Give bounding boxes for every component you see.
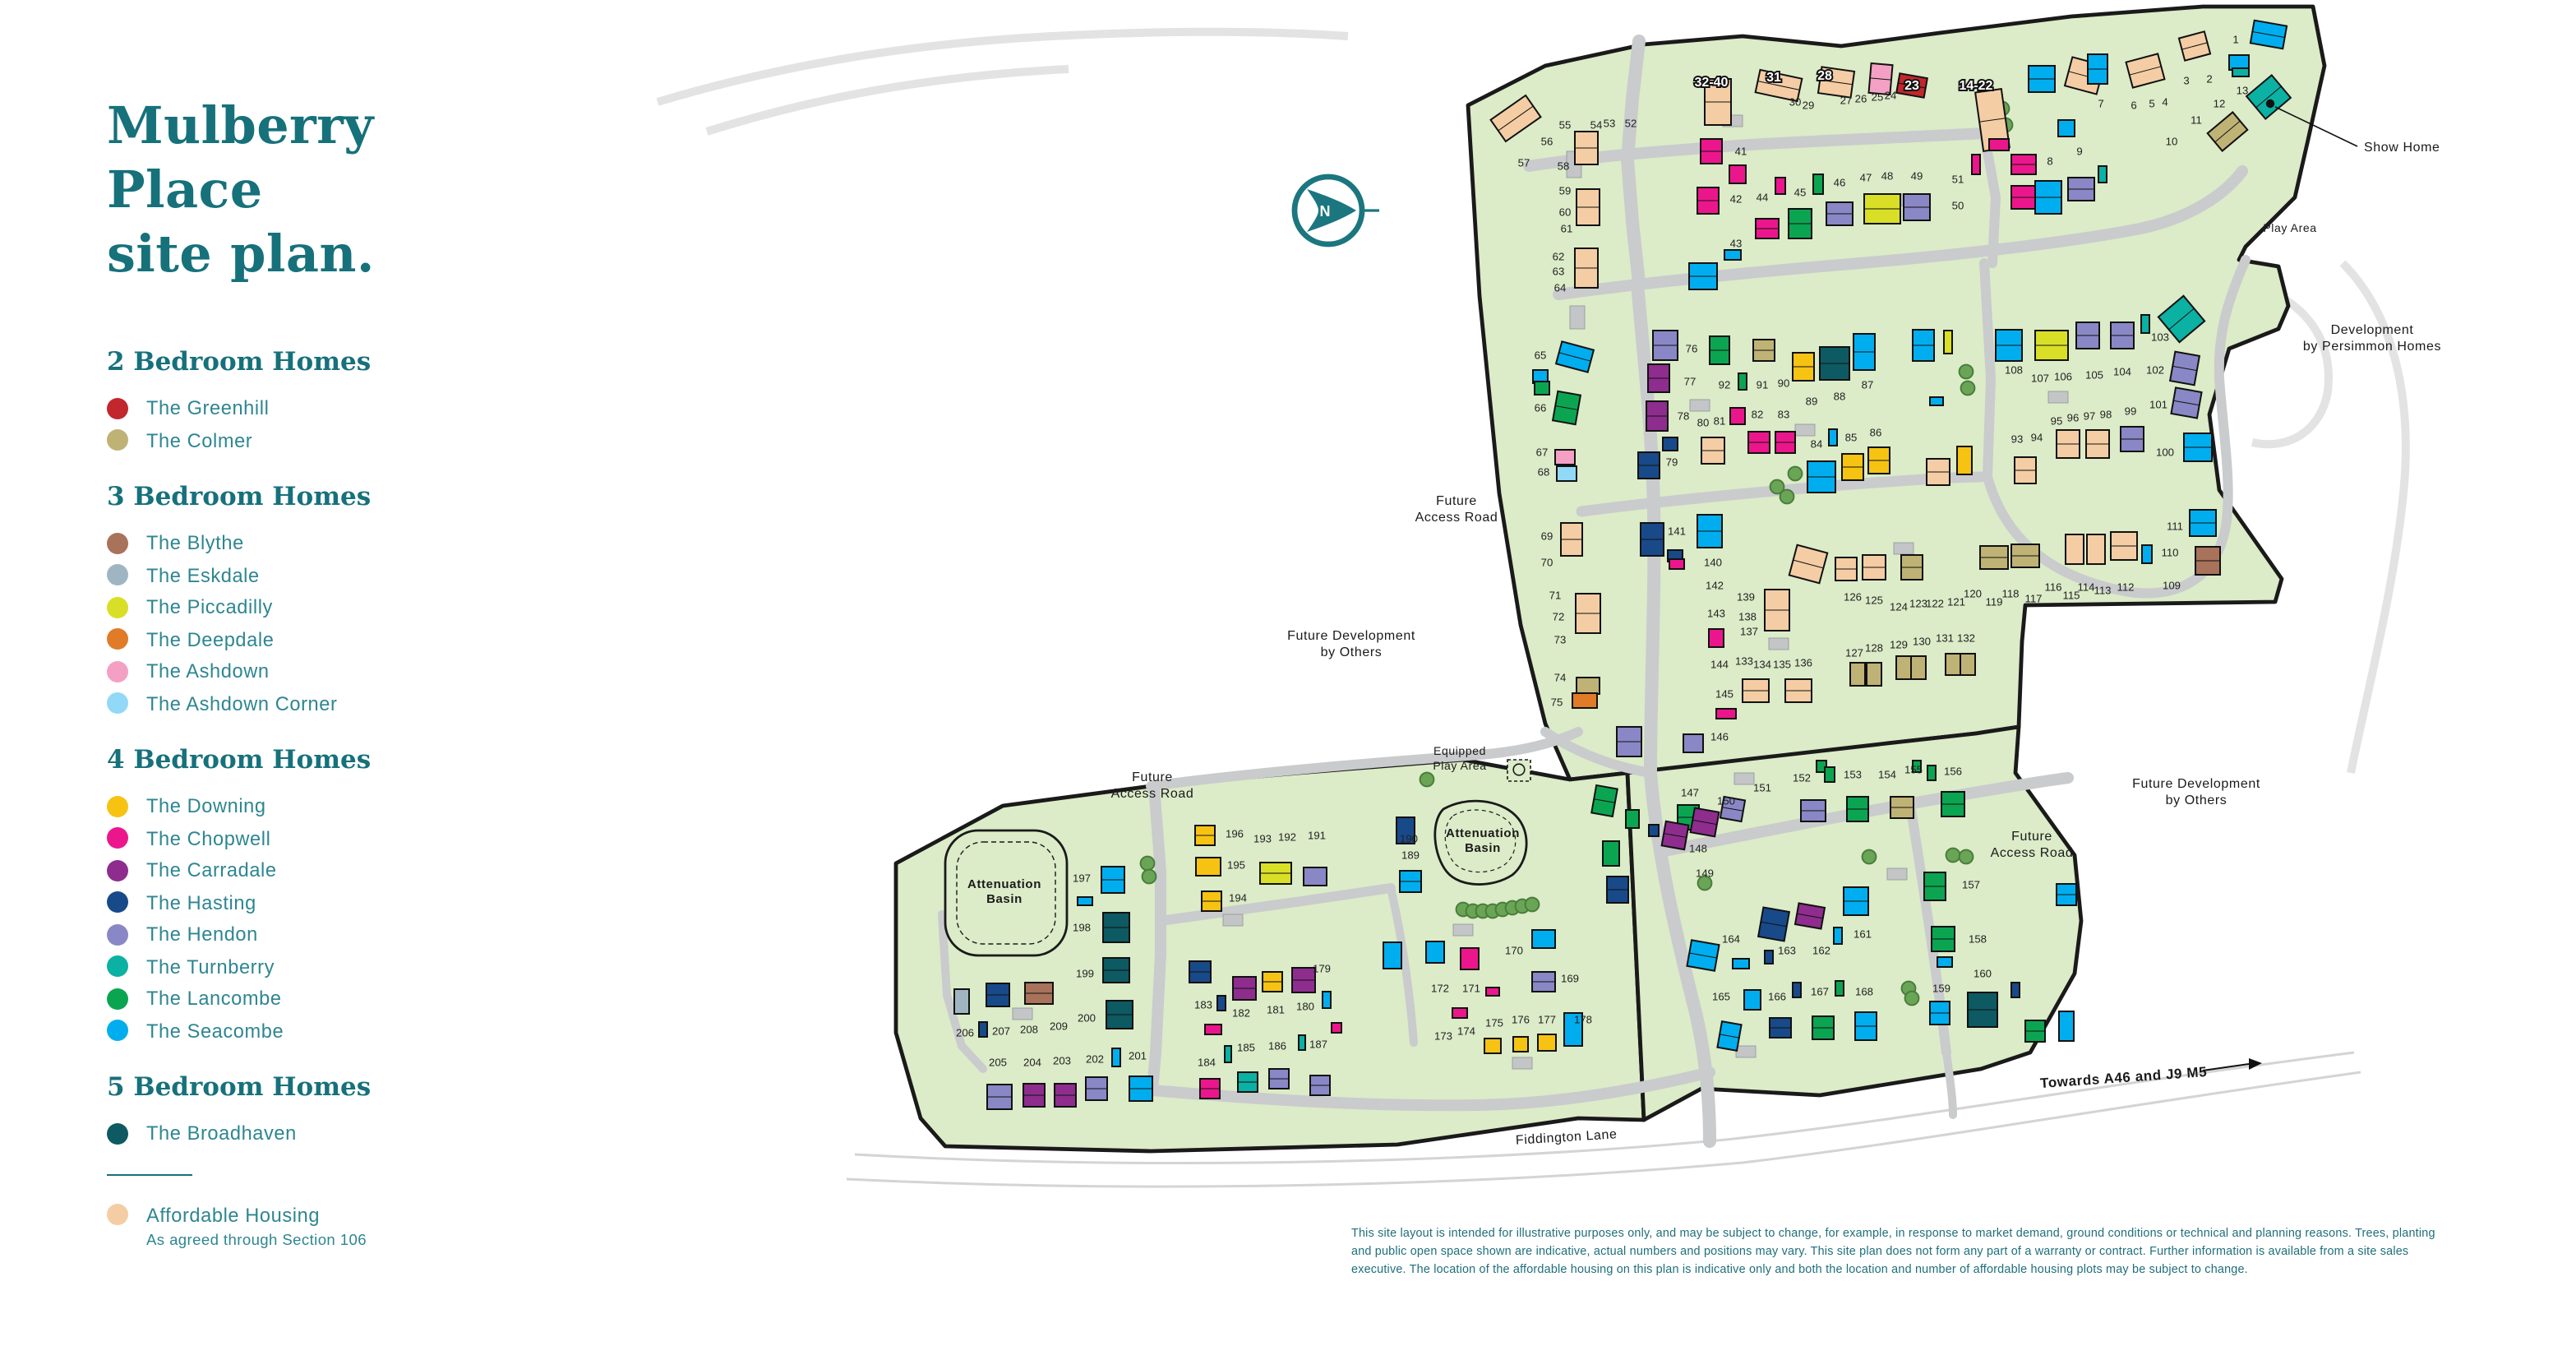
plot-number: 50 [1952, 199, 1964, 211]
house-marker-la [1932, 927, 1955, 951]
plot-number: 55 [1559, 118, 1572, 131]
house-marker-ch [1486, 988, 1499, 996]
legend-item-label: The Carradale [146, 858, 277, 881]
house-marker-do [1195, 826, 1215, 845]
plot-number: 203 [1053, 1054, 1071, 1066]
plot-number: 65 [1535, 349, 1547, 361]
map-label: Access Road [1415, 511, 1498, 525]
plot-number: 76 [1686, 342, 1698, 354]
plot-number: 133 [1735, 655, 1753, 667]
plot-number: 68 [1538, 465, 1550, 478]
plot-number: 62 [1553, 250, 1565, 262]
plot-number: 46 [1834, 176, 1846, 188]
plot-number: 72 [1553, 610, 1565, 622]
legend-heading: 4 Bedroom Homes [107, 744, 715, 775]
house-marker-ch [2011, 186, 2036, 209]
plot-number: 90 [1778, 377, 1790, 389]
house-marker-af [1577, 189, 1600, 225]
house-marker-se [1383, 942, 1401, 969]
plot-number: 180 [1296, 1000, 1314, 1012]
house-marker-se [1937, 957, 1952, 967]
plot-number: 11 [2191, 113, 2202, 126]
legend-color-dot [107, 596, 128, 618]
plot-number: 63 [1553, 265, 1565, 277]
house-marker-se [1913, 330, 1934, 361]
house-marker-ha [2011, 983, 2020, 997]
legend-item-the-colmer: The Colmer [107, 424, 715, 456]
plot-number: 154 [1878, 768, 1896, 780]
house-marker-ca [1646, 401, 1668, 431]
plot-number: 12 [2214, 97, 2226, 109]
plot-range-label: 28 [1817, 69, 1832, 83]
plot-number: 190 [1400, 832, 1418, 844]
house-marker-se [1101, 867, 1124, 893]
map-label: Access Road [1991, 846, 2074, 860]
legend-item-the-ashdown-corner: The Ashdown Corner [107, 687, 715, 719]
house-marker-se [1323, 992, 1331, 1008]
tree-icon [1143, 870, 1156, 884]
plot-number: 207 [992, 1025, 1010, 1037]
legend-heading: 5 Bedroom Homes [107, 1071, 715, 1103]
house-marker-se [1930, 397, 1943, 405]
plot-number: 185 [1237, 1041, 1255, 1053]
house-marker-bl [2195, 547, 2220, 575]
house-marker-do [1202, 891, 1221, 911]
house-marker-se [1744, 990, 1761, 1010]
house-marker-se [1829, 429, 1837, 446]
house-marker-ha [986, 983, 1009, 1006]
house-marker-ha [1765, 951, 1773, 964]
house-marker-he [1304, 867, 1327, 886]
house-marker-ha [1638, 452, 1660, 479]
house-marker-tu [2232, 68, 2249, 76]
plot-number: 172 [1431, 982, 1449, 994]
plot-number: 27 [1840, 94, 1853, 106]
house-marker-se [2058, 120, 2075, 136]
map-label: Access Road [1111, 787, 1194, 801]
legend-item-label: The Hendon [146, 923, 258, 946]
plot-number: 119 [1985, 595, 2002, 608]
plot-number: 192 [1278, 830, 1296, 843]
plot-number: 131 [1936, 631, 1954, 644]
house-marker-ch [1709, 629, 1724, 647]
plot-number: 117 [2024, 592, 2042, 604]
plot-number: 170 [1505, 944, 1523, 956]
house-marker-he [2111, 322, 2134, 349]
house-marker-af [1789, 545, 1828, 584]
map-label: Future [2011, 830, 2052, 844]
plot-number: 108 [2005, 363, 2023, 376]
house-marker-ch [1775, 432, 1795, 453]
affordable-housing-note: As agreed through Section 106 [146, 1233, 715, 1249]
plot-range-label: 32-40 [1695, 76, 1729, 90]
house-marker-ch [1669, 559, 1684, 569]
legend-section: 5 Bedroom HomesThe Broadhaven [107, 1071, 715, 1150]
plot-number: 73 [1554, 633, 1567, 645]
house-marker-af [1575, 132, 1598, 164]
house-marker-he [1310, 1076, 1330, 1095]
plot-number: 109 [2163, 579, 2181, 591]
plot-number: 87 [1862, 378, 1874, 391]
house-marker-co [1577, 678, 1600, 694]
plot-number: 77 [1684, 375, 1697, 387]
house-marker-la [1927, 766, 1936, 780]
house-marker-ac [1557, 466, 1577, 481]
map-label: Basin [986, 892, 1023, 906]
house-marker-ch [1775, 178, 1785, 194]
map-label: Future [1132, 770, 1173, 784]
house-marker-se [1996, 330, 2022, 361]
legend-color-dot [107, 660, 128, 682]
plot-number: 10 [2166, 135, 2178, 147]
legend-item-the-broadhaven: The Broadhaven [107, 1117, 715, 1150]
house-marker-se [2057, 884, 2076, 905]
plot-range-label: 23 [1904, 79, 1919, 93]
house-marker-co [1753, 340, 1775, 361]
plot-number: 51 [1952, 173, 1964, 185]
house-marker-ca [1023, 1084, 1045, 1107]
house-marker-af [1575, 248, 1598, 288]
map-label: Equipped [1433, 744, 1486, 757]
house-marker-la [1825, 767, 1835, 782]
map-label: Play Area [1433, 759, 1486, 772]
disclaimer-text: This site layout is intended for illustr… [1351, 1224, 2440, 1279]
legend-item-label: The Broadhaven [146, 1122, 297, 1145]
legend-color-dot [107, 891, 128, 913]
house-marker-ch [1205, 1025, 1221, 1034]
legend-item-the-lancombe: The Lancombe [107, 983, 715, 1015]
house-marker-se [1112, 1048, 1120, 1066]
legend-color-dot [107, 397, 128, 419]
plot-number: 176 [1512, 1013, 1530, 1025]
house-marker-do [1793, 353, 1814, 381]
legend-item-label: The Seacombe [146, 1019, 284, 1042]
house-marker-co [1896, 656, 1911, 679]
house-marker-de [1572, 693, 1597, 708]
house-marker-af [1765, 590, 1789, 631]
house-marker-ca [1662, 821, 1689, 849]
legend-item-label: The Downing [146, 794, 266, 817]
plot-number: 67 [1536, 446, 1549, 458]
house-marker-se [2142, 545, 2152, 563]
house-marker-ch [1989, 139, 2009, 150]
house-marker-se [1400, 871, 1421, 892]
legend-item-the-downing: The Downing [107, 790, 715, 822]
house-marker-co [1960, 654, 1975, 675]
house-marker-se [1733, 959, 1749, 969]
plot-number: 128 [1865, 641, 1883, 654]
house-marker-af [1561, 523, 1582, 556]
house-marker-se [1855, 1012, 1877, 1040]
plot-number: 152 [1793, 771, 1811, 784]
house-marker-se [1697, 515, 1722, 548]
plot-number: 161 [1854, 927, 1872, 940]
legend-section: 2 Bedroom HomesThe GreenhillThe Colmer [107, 346, 715, 456]
tree-icon [1526, 898, 1540, 912]
plot-number: 99 [2125, 405, 2137, 417]
legend-item-label: The Deepdale [146, 627, 274, 650]
plot-number: 113 [2094, 584, 2111, 596]
tree-icon [1780, 490, 1794, 504]
tree-icon [1141, 857, 1155, 871]
house-marker-la [1738, 373, 1747, 390]
plot-number: 124 [1890, 600, 1908, 613]
house-marker-ch [1756, 219, 1779, 238]
plot-number: 81 [1714, 414, 1726, 427]
house-marker-he [2068, 178, 2094, 201]
plot-number: 5 [2149, 97, 2154, 109]
house-marker-ch [1729, 165, 1746, 183]
house-marker-as [1555, 450, 1575, 465]
house-marker-se [1129, 1076, 1152, 1101]
legend-item-the-greenhill: The Greenhill [107, 392, 715, 424]
house-marker-bl [1025, 983, 1053, 1004]
plot-number: 179 [1313, 962, 1331, 974]
legend-item-the-carradale: The Carradale [107, 854, 715, 886]
plot-number: 157 [1962, 878, 1980, 890]
legend-color-dot [107, 955, 128, 977]
plot-number: 89 [1806, 395, 1818, 407]
plot-number: 71 [1549, 589, 1562, 601]
legend-item-the-hasting: The Hasting [107, 886, 715, 918]
house-marker-se [2059, 1011, 2074, 1041]
map-label: by Others [2166, 793, 2227, 807]
plot-number: 202 [1086, 1052, 1104, 1065]
plot-number: 195 [1227, 858, 1245, 871]
plot-number: 132 [1957, 631, 1975, 644]
plot-number: 125 [1865, 594, 1883, 606]
plot-number: 92 [1719, 378, 1731, 391]
house-marker-he [1086, 1077, 1107, 1100]
plot-number: 45 [1794, 186, 1807, 198]
plot-number: 155 [1904, 763, 1923, 775]
plot-number: 103 [2151, 331, 2169, 343]
house-marker-se [2035, 181, 2061, 214]
plot-number: 53 [1604, 117, 1616, 129]
map-label: Show Home [2364, 141, 2440, 155]
plot-number: 9 [2076, 145, 2082, 157]
plot-number: 52 [1625, 117, 1637, 129]
plot-number: 104 [2113, 365, 2131, 377]
plot-number: 105 [2085, 368, 2103, 381]
plot-number: 160 [1974, 967, 1992, 979]
plot-number: 147 [1681, 786, 1699, 798]
house-marker-he [1801, 800, 1826, 821]
house-marker-af [1863, 555, 1886, 580]
house-marker-ch [1332, 1023, 1341, 1033]
plot-number: 82 [1752, 408, 1764, 420]
plot-number: 169 [1561, 972, 1579, 984]
house-marker-do [1868, 447, 1890, 474]
plot-number: 177 [1538, 1013, 1556, 1025]
plot-number: 174 [1457, 1025, 1475, 1037]
plot-number: 93 [2011, 433, 2024, 445]
house-marker-af [1835, 557, 1857, 581]
legend-item-the-eskdale: The Eskdale [107, 559, 715, 591]
map-label: Play Area [2263, 221, 2316, 234]
house-marker-pi [1864, 194, 1900, 224]
plot-number: 110 [2161, 546, 2178, 558]
house-marker-ha [1189, 961, 1211, 983]
plot-number: 69 [1541, 530, 1553, 542]
plot-number: 163 [1778, 944, 1796, 956]
plot-number: 186 [1268, 1039, 1286, 1052]
plot-number: 189 [1401, 849, 1420, 861]
map-label: Fiddington Lane [1515, 1127, 1618, 1148]
plot-number: 47 [1860, 171, 1872, 183]
plot-number: 25 [1872, 90, 1884, 103]
plot-number: 91 [1757, 378, 1769, 391]
legend-item-label: The Chopwell [146, 826, 270, 849]
page-title: Mulberry Place site plan. [107, 95, 715, 287]
house-marker-af [2087, 534, 2105, 564]
house-marker-la [1626, 810, 1639, 828]
legend-item-the-seacombe: The Seacombe [107, 1015, 715, 1047]
plot-number: 88 [1834, 390, 1846, 402]
show-home-dot [2266, 99, 2274, 108]
svg-text:N: N [1320, 203, 1331, 220]
house-marker-se [1078, 897, 1092, 905]
plot-number: 61 [1561, 222, 1573, 234]
house-marker-la [1847, 797, 1868, 821]
plot-number: 181 [1267, 1003, 1285, 1015]
plot-number: 102 [2146, 363, 2164, 376]
house-marker-ha [1793, 983, 1801, 997]
map-label: Development [2331, 323, 2414, 337]
house-marker-se [1717, 1021, 1741, 1051]
plot-number: 4 [2162, 95, 2167, 108]
house-marker-ha [1607, 877, 1628, 903]
house-marker-co [2011, 544, 2039, 567]
house-marker-tu [1299, 1035, 1305, 1050]
plot-number: 183 [1194, 998, 1212, 1011]
plot-number: 122 [1926, 597, 1944, 609]
map-label: Towards A46 and J9 M5 [2039, 1064, 2207, 1091]
plot-number: 29 [1803, 99, 1815, 111]
plot-number: 171 [1462, 982, 1480, 994]
house-marker-ch [1972, 155, 1980, 174]
tree-icon [1960, 850, 1974, 864]
house-marker-af [2066, 534, 2084, 564]
house-marker-tu [2141, 315, 2149, 333]
legend-item-label: The Ashdown Corner [146, 692, 337, 715]
house-marker-af [1785, 679, 1812, 702]
house-marker-af [2086, 430, 2109, 458]
plot-number: 80 [1697, 416, 1710, 428]
plot-number: 129 [1890, 638, 1908, 650]
house-marker-se [2251, 21, 2287, 49]
plot-number: 121 [1947, 595, 1965, 608]
house-marker-br [1106, 1001, 1133, 1029]
house-marker-se [1689, 263, 1717, 289]
house-marker-ch [1461, 948, 1479, 969]
house-marker-do [1196, 858, 1221, 876]
house-marker-ha [1758, 907, 1789, 941]
plot-number: 123 [1909, 597, 1927, 609]
legend-item-the-ashdown: The Ashdown [107, 655, 715, 687]
legend-item-the-deepdale: The Deepdale [107, 623, 715, 655]
plot-number: 107 [2031, 372, 2049, 384]
legend-heading: 3 Bedroom Homes [107, 481, 715, 512]
plot-number: 59 [1559, 184, 1572, 197]
house-marker-tu [1225, 1046, 1231, 1062]
legend-section: 4 Bedroom HomesThe DowningThe ChopwellTh… [107, 744, 715, 1047]
plot-number: 49 [1911, 169, 1923, 182]
plot-range-label: 31 [1766, 71, 1781, 85]
tree-icon [1789, 467, 1803, 481]
plot-number: 167 [1811, 985, 1829, 997]
plot-number: 75 [1551, 696, 1563, 708]
house-marker-se [1687, 940, 1719, 970]
house-marker-se [1854, 334, 1875, 370]
house-marker-he [1683, 734, 1703, 752]
house-marker-se [1724, 250, 1741, 260]
plot-number: 100 [2156, 446, 2174, 458]
house-marker-do [1957, 446, 1972, 474]
plot-number: 141 [1668, 525, 1686, 537]
house-marker-se [1844, 887, 1868, 915]
plot-number: 178 [1574, 1013, 1592, 1025]
plot-number: 136 [1794, 656, 1812, 668]
house-marker-af [2111, 532, 2137, 560]
legend-item-the-chopwell: The Chopwell [107, 822, 715, 854]
plot-number: 98 [2100, 408, 2112, 420]
house-marker-he [1269, 1069, 1289, 1089]
legend-item-label: The Blythe [146, 531, 244, 554]
house-marker-co [1867, 663, 1881, 686]
map-label: Attenuation [1446, 826, 1520, 840]
plot-number: 78 [1678, 409, 1690, 422]
house-marker-br [1820, 347, 1849, 380]
plot-number: 184 [1198, 1056, 1216, 1068]
plot-number: 70 [1541, 556, 1553, 568]
house-marker-la [1941, 792, 1964, 816]
house-marker-ch [1701, 139, 1722, 164]
plot-number: 208 [1020, 1023, 1038, 1035]
house-marker-tu [2098, 166, 2107, 183]
legend-color-dot [107, 795, 128, 816]
house-marker-pi [1944, 331, 1952, 354]
plot-number: 43 [1730, 237, 1743, 249]
house-marker-ca [1648, 364, 1669, 392]
plot-number: 143 [1707, 607, 1725, 619]
legend-color-dot [107, 429, 128, 451]
map-label: Future [1436, 494, 1477, 508]
plot-number: 118 [2001, 587, 2019, 599]
plot-number: 3 [2183, 74, 2189, 86]
plot-number: 145 [1715, 687, 1733, 700]
plot-number: 201 [1129, 1049, 1147, 1062]
house-marker-af [1576, 594, 1600, 633]
plot-number: 151 [1753, 781, 1771, 793]
legend-item-the-turnberry: The Turnberry [107, 951, 715, 983]
house-marker-he [2121, 427, 2144, 451]
house-marker-ch [1697, 187, 1719, 214]
map-label: Basin [1465, 841, 1501, 855]
house-marker-co [1980, 546, 2008, 569]
plot-number: 60 [1559, 206, 1572, 218]
legend-item-label: Affordable Housing [146, 1203, 320, 1226]
plot-number: 149 [1696, 867, 1714, 879]
house-marker-la [2025, 1020, 2045, 1042]
legend-item-the-piccadilly: The Piccadilly [107, 591, 715, 623]
plot-number: 209 [1050, 1020, 1068, 1032]
legend-color-dot [107, 1204, 128, 1225]
plot-number: 57 [1518, 156, 1530, 169]
plot-number: 48 [1881, 169, 1894, 182]
plot-number: 120 [1964, 587, 1982, 599]
house-marker-ha [979, 1022, 987, 1037]
